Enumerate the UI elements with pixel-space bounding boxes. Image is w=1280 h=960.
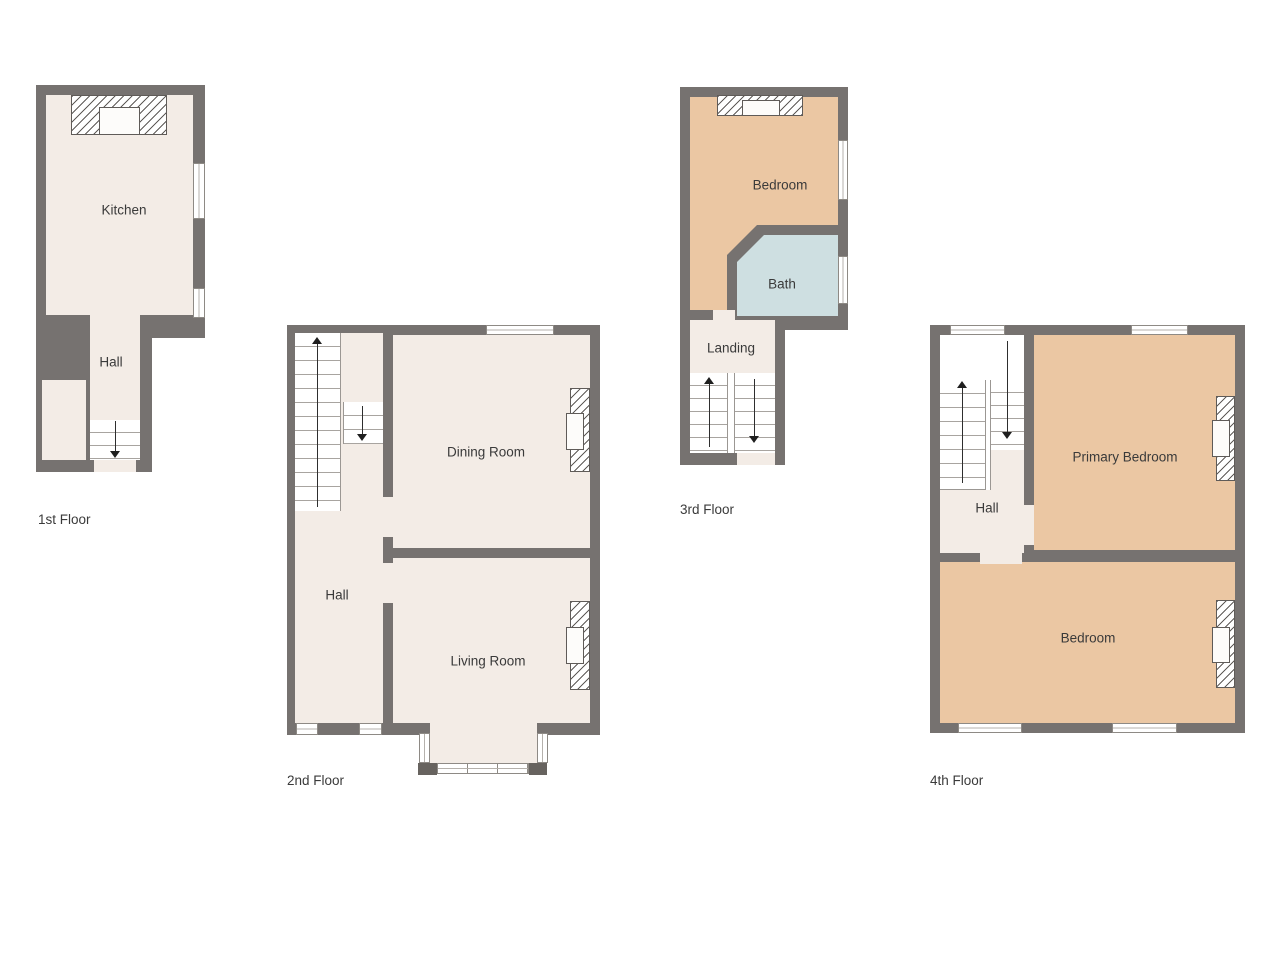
room-label-bath: Bath <box>768 277 796 292</box>
stairs-up-arrow-icon <box>312 337 322 507</box>
window <box>1131 325 1188 335</box>
stairs-down-arrow-icon <box>110 421 120 458</box>
floorplan-canvas: Kitchen Hall 1st Floor Dining Room Hall … <box>0 0 1280 960</box>
door-gap <box>1024 505 1034 545</box>
room-dining-floor <box>393 335 590 548</box>
room-bath-floor <box>737 235 838 316</box>
window <box>296 723 318 735</box>
bay-corner-post <box>529 763 547 775</box>
window <box>193 288 205 318</box>
stairs-down-arrow-icon <box>1002 341 1012 439</box>
room-label-bedroom: Bedroom <box>753 178 808 193</box>
room-label-living: Living Room <box>450 654 525 669</box>
window <box>950 325 1005 335</box>
floor-label-1st: 1st Floor <box>38 512 91 527</box>
room-label-dining: Dining Room <box>447 445 525 460</box>
fireplace-opening <box>742 100 780 116</box>
window <box>193 163 205 219</box>
room-living-floor <box>393 558 590 723</box>
stairs-down-arrow-icon <box>749 379 759 443</box>
floor-label-4th: 4th Floor <box>930 773 983 788</box>
room-label-landing: Landing <box>707 341 755 356</box>
window <box>838 140 848 200</box>
stair-rail <box>727 373 735 453</box>
door-gap <box>980 550 1022 564</box>
window <box>437 763 529 774</box>
fireplace-opening <box>566 627 584 664</box>
bay-window-floor <box>430 723 537 763</box>
door-gap <box>383 563 393 603</box>
window <box>537 733 548 763</box>
floor-label-2nd: 2nd Floor <box>287 773 344 788</box>
bay-corner-post <box>418 763 437 775</box>
window <box>1112 723 1177 733</box>
room-label-primary-bedroom: Primary Bedroom <box>1072 450 1177 465</box>
fireplace-opening <box>566 413 584 450</box>
door-gap <box>383 497 393 537</box>
fireplace-opening <box>1212 627 1230 663</box>
window <box>486 325 554 335</box>
room-label-hall: Hall <box>99 355 122 370</box>
window <box>958 723 1022 733</box>
window <box>838 256 848 304</box>
room-label-kitchen: Kitchen <box>101 203 146 218</box>
fireplace-opening <box>1212 420 1230 457</box>
stairs-down-arrow-icon <box>357 406 367 441</box>
room-store-floor <box>42 380 86 460</box>
stairs-up-arrow-icon <box>704 377 714 447</box>
window <box>359 723 382 735</box>
door-gap <box>713 310 735 320</box>
floor-label-3rd: 3rd Floor <box>680 502 734 517</box>
window <box>419 733 430 763</box>
room-label-hall: Hall <box>325 588 348 603</box>
stairs-up-arrow-icon <box>957 381 967 483</box>
room-label-hall: Hall <box>975 501 998 516</box>
room-label-bedroom: Bedroom <box>1061 631 1116 646</box>
door-gap <box>737 453 775 465</box>
room-primary-bedroom-floor <box>1034 335 1235 550</box>
fireplace-opening <box>99 107 140 135</box>
door-gap <box>94 460 136 472</box>
